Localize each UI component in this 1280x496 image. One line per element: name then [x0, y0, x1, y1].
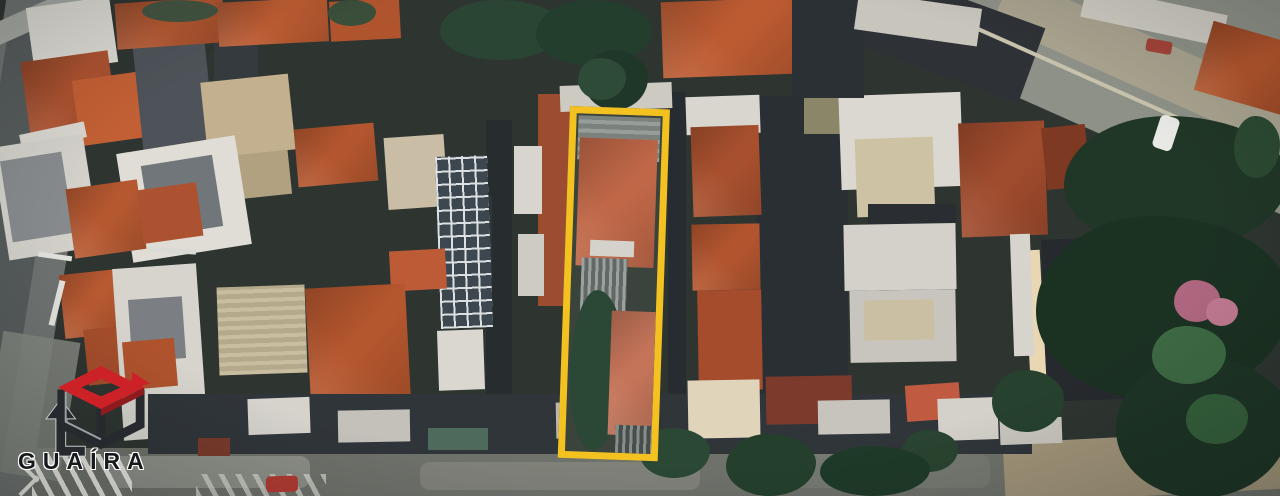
roof-orange-bl-a	[65, 179, 146, 258]
alley-c	[756, 96, 848, 416]
roof-orange-mid-top	[294, 123, 379, 188]
bldg-white-lol-a	[514, 146, 542, 214]
roof-beige-lower-inner	[864, 299, 935, 340]
row-gray-a	[338, 409, 411, 442]
crosswalk-b	[196, 474, 326, 496]
car-red-bottom	[266, 475, 299, 492]
lot-roof-salmon-bottom	[608, 311, 656, 436]
roof-orange-mid-big	[305, 283, 411, 406]
satellite-photo: GUAÍRA	[0, 0, 1280, 496]
row-gray-b	[818, 399, 891, 434]
property-lot	[558, 106, 670, 461]
roof-orange-right-a	[958, 121, 1048, 238]
bldg-white-right-long	[843, 223, 956, 291]
roof-gray-left-inner	[0, 152, 74, 243]
roof-orange-top-center	[661, 0, 796, 78]
lot-corrugated-bottom	[615, 425, 652, 454]
row-teal-roof	[428, 428, 488, 450]
roof-orange-r3	[697, 289, 763, 390]
band-dark-right	[868, 204, 956, 224]
guaira-watermark: GUAÍRA	[14, 364, 184, 490]
roof-orange-top-b	[217, 0, 329, 47]
roof-glass-grid	[435, 155, 493, 329]
lot-white-structure	[590, 240, 635, 258]
row-cream-c	[687, 379, 760, 438]
bldg-white-mid-bottom	[437, 329, 485, 391]
roof-orange-bl-b	[137, 182, 204, 244]
guaira-cube-logo	[40, 364, 158, 460]
bldg-white-lol-b	[518, 234, 544, 296]
bldg-white-frame-right	[1010, 234, 1034, 357]
roof-beige-mid	[216, 284, 307, 375]
door-red-small	[198, 438, 230, 456]
brand-wordmark: GUAÍRA	[18, 448, 151, 475]
roof-orange-r1	[690, 125, 761, 217]
roof-dark-top	[792, 0, 864, 98]
row-white-a	[247, 397, 310, 435]
roof-orange-r2	[691, 223, 760, 290]
